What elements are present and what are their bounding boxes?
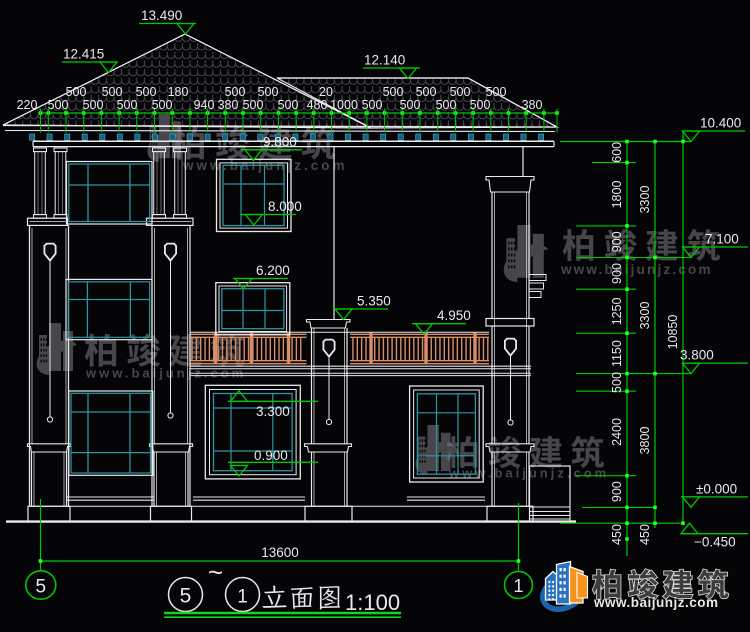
svg-text:10.400: 10.400: [700, 116, 741, 131]
svg-text:3.800: 3.800: [680, 348, 714, 363]
svg-text:500: 500: [486, 85, 507, 99]
svg-text:500: 500: [243, 98, 264, 112]
svg-text:500: 500: [436, 98, 457, 112]
svg-text:1: 1: [237, 587, 248, 608]
svg-text:5.350: 5.350: [357, 294, 391, 309]
svg-text:500: 500: [83, 98, 104, 112]
svg-text:940: 940: [194, 98, 215, 112]
svg-text:180: 180: [168, 85, 189, 99]
svg-text:8.000: 8.000: [268, 199, 302, 214]
svg-text:500: 500: [362, 98, 383, 112]
svg-text:380: 380: [522, 98, 543, 112]
svg-text:−0.450: −0.450: [694, 535, 736, 550]
svg-text:3800: 3800: [638, 427, 652, 455]
svg-text:12.415: 12.415: [63, 47, 104, 62]
svg-text:1150: 1150: [610, 340, 624, 367]
svg-text:500: 500: [470, 98, 491, 112]
svg-text:0.900: 0.900: [254, 448, 288, 463]
svg-text:500: 500: [48, 98, 69, 112]
svg-text:450: 450: [610, 524, 624, 545]
svg-text:2400: 2400: [610, 418, 624, 446]
svg-text:600: 600: [610, 142, 624, 163]
svg-text:500: 500: [66, 85, 87, 99]
svg-text:1:100: 1:100: [345, 590, 400, 615]
svg-text:480: 480: [307, 98, 328, 112]
svg-text:5: 5: [180, 585, 192, 608]
svg-text:3300: 3300: [638, 302, 652, 330]
svg-text:500: 500: [278, 98, 299, 112]
svg-text:1250: 1250: [610, 297, 624, 325]
svg-text:1: 1: [513, 576, 523, 596]
svg-text:13600: 13600: [261, 545, 299, 560]
svg-text:380: 380: [218, 98, 239, 112]
svg-text:500: 500: [225, 85, 246, 99]
svg-text:10850: 10850: [666, 315, 680, 350]
svg-text:500: 500: [416, 85, 437, 99]
svg-text:7.100: 7.100: [705, 232, 739, 247]
svg-text:500: 500: [400, 98, 421, 112]
svg-text:9.800: 9.800: [263, 134, 297, 149]
svg-text:1800: 1800: [610, 181, 624, 209]
svg-text:13.490: 13.490: [141, 8, 182, 23]
svg-text:5: 5: [36, 577, 47, 598]
svg-text:±0.000: ±0.000: [696, 481, 737, 496]
svg-text:500: 500: [152, 98, 173, 112]
svg-text:3.300: 3.300: [256, 404, 290, 419]
svg-text:500: 500: [383, 85, 404, 99]
svg-text:500: 500: [102, 85, 123, 99]
svg-text:500: 500: [450, 85, 471, 99]
svg-text:900: 900: [610, 263, 624, 284]
svg-text:900: 900: [610, 231, 624, 252]
svg-text:12.140: 12.140: [364, 53, 405, 68]
svg-text:6.200: 6.200: [256, 263, 290, 278]
svg-text:~: ~: [208, 557, 223, 587]
svg-text:500: 500: [258, 85, 279, 99]
svg-text:1000: 1000: [330, 98, 358, 112]
svg-text:220: 220: [17, 98, 38, 112]
svg-text:www.baijunjz.com: www.baijunjz.com: [560, 262, 713, 277]
svg-text:3300: 3300: [638, 186, 652, 214]
svg-text:450: 450: [638, 524, 652, 545]
svg-text:900: 900: [610, 481, 624, 502]
svg-text:500: 500: [136, 85, 157, 99]
svg-text:500: 500: [117, 98, 138, 112]
svg-text:www.baijunjz.com: www.baijunjz.com: [593, 595, 719, 610]
svg-text:4.950: 4.950: [437, 308, 471, 323]
svg-text:500: 500: [610, 372, 624, 393]
svg-text:20: 20: [319, 85, 333, 99]
